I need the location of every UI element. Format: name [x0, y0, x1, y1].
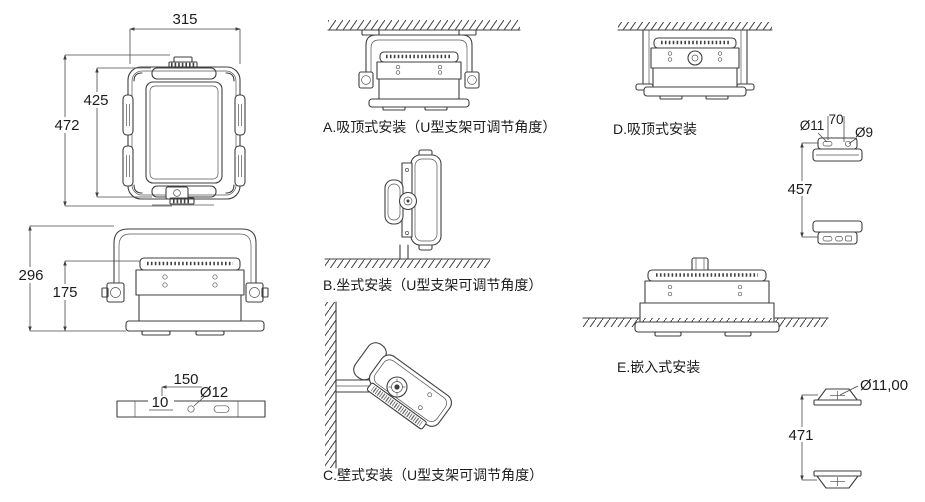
- dim-hole-spacing-label: 70: [828, 112, 843, 127]
- install-e-fixture: [640, 258, 774, 322]
- ceiling-hatch: [328, 20, 520, 30]
- dim-bracket-distance-top-label: 457: [787, 181, 812, 198]
- install-b: B.坐式安装（U型支架可调节角度）: [323, 150, 542, 293]
- bracket-pair-top: Ø11 70 Ø9 457: [785, 112, 873, 244]
- install-c-caption: C.壁式安装（U型支架可调节角度）: [323, 467, 543, 483]
- install-d-caption: D.吸顶式安装: [613, 121, 697, 137]
- pivot-knob: [387, 377, 407, 397]
- dim-bracket-distance-bottom-label: 471: [788, 427, 813, 444]
- install-e: E.嵌入式安装: [583, 258, 828, 375]
- fixture-side: [126, 258, 264, 335]
- install-c: C.壁式安装（U型支架可调节角度）: [323, 302, 543, 483]
- ground-hatch: [325, 259, 490, 268]
- dim-height-total-label: 472: [54, 117, 79, 134]
- side-view: 296 175: [13, 226, 268, 335]
- side-clips: [123, 95, 245, 186]
- install-a-caption: A.吸顶式安装（U型支架可调节角度）: [323, 119, 556, 135]
- install-d: D.吸顶式安装: [613, 22, 772, 137]
- bracket-top-dimensions: Ø11 70 Ø9 457: [785, 112, 873, 237]
- dim-height-inner-label: 425: [83, 92, 108, 109]
- dim-bar-length-label: 150: [173, 371, 198, 388]
- dim-hole-left-label: Ø11: [800, 118, 825, 133]
- top-mount-knob: [169, 57, 197, 68]
- install-d-fixture: [644, 38, 746, 99]
- bracket-upper: [813, 138, 862, 161]
- small-hole: [188, 406, 194, 412]
- install-b-fixture: [385, 150, 441, 250]
- dim-hole-right-label: Ø9: [855, 125, 873, 140]
- mount-bar-view: 150 Ø12 10: [117, 371, 265, 417]
- front-view: 315 425 472: [50, 11, 245, 206]
- bracket-pair-bottom: Ø11,00 471: [786, 377, 908, 488]
- dim-bar-thickness-label: 10: [152, 394, 169, 411]
- install-e-caption: E.嵌入式安装: [617, 359, 700, 375]
- installation-drawing-page: 315 425 472: [0, 0, 925, 502]
- ceiling-hatch-d: [618, 22, 772, 30]
- front-view-dimensions: 315 425 472: [50, 11, 240, 206]
- bracket-lower-b: [814, 471, 861, 488]
- wall-hatch: [325, 302, 336, 468]
- mount-bar-dimensions: 150 Ø12 10: [148, 371, 228, 411]
- install-a: A.吸顶式安装（U型支架可调节角度）: [323, 20, 556, 135]
- dim-hole-bottom-label: Ø11,00: [860, 377, 908, 394]
- dim-bar-hole-label: Ø12: [200, 384, 228, 401]
- dim-side-total-label: 296: [18, 267, 43, 284]
- side-view-dimensions: 296 175: [13, 226, 140, 331]
- install-a-fixture: [369, 52, 469, 110]
- dim-side-body-label: 175: [52, 284, 77, 301]
- technical-drawing: 315 425 472: [0, 0, 925, 502]
- bracket-upper-b: [814, 389, 861, 405]
- slot-hole: [214, 406, 229, 413]
- dim-width-label: 315: [172, 11, 197, 28]
- install-b-caption: B.坐式安装（U型支架可调节角度）: [323, 277, 542, 293]
- bracket-lower: [813, 221, 862, 244]
